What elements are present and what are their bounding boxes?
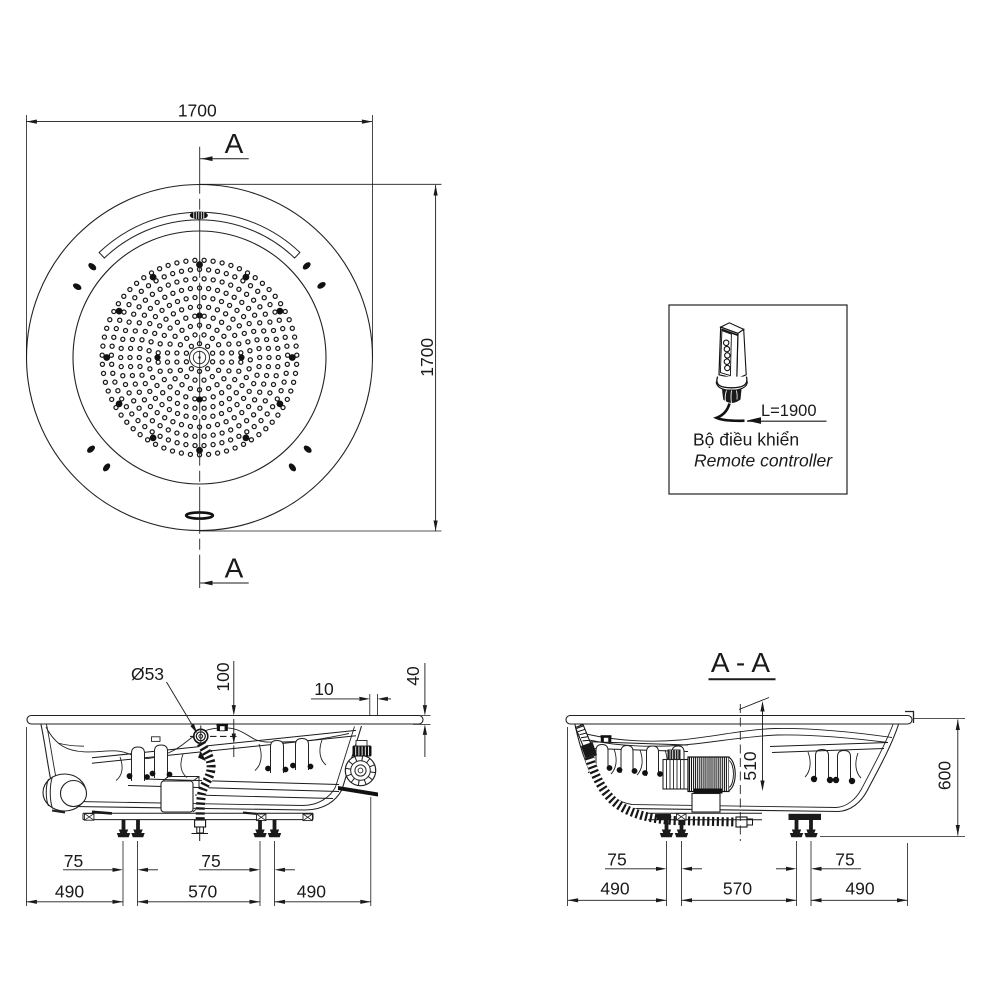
svg-text:Ø53: Ø53: [131, 664, 164, 684]
svg-text:A: A: [225, 552, 244, 583]
svg-text:510: 510: [740, 751, 760, 780]
svg-text:L=1900: L=1900: [761, 402, 817, 420]
svg-text:75: 75: [64, 851, 83, 871]
svg-text:1700: 1700: [178, 101, 217, 121]
svg-text:600: 600: [935, 761, 955, 790]
svg-text:490: 490: [55, 882, 84, 902]
svg-text:10: 10: [314, 679, 334, 699]
svg-text:Bộ điều khiển: Bộ điều khiển: [693, 430, 799, 450]
svg-text:A: A: [225, 128, 244, 159]
svg-text:75: 75: [607, 849, 626, 869]
svg-text:40: 40: [403, 666, 423, 686]
svg-text:1700: 1700: [417, 338, 437, 377]
svg-text:490: 490: [297, 882, 326, 902]
svg-text:570: 570: [723, 879, 752, 899]
svg-text:75: 75: [201, 851, 220, 871]
svg-text:490: 490: [600, 879, 629, 899]
svg-text:75: 75: [835, 849, 854, 869]
svg-text:570: 570: [188, 882, 217, 902]
svg-text:Remote controller: Remote controller: [694, 451, 833, 471]
svg-text:A - A: A - A: [711, 647, 770, 678]
svg-text:100: 100: [213, 662, 233, 691]
svg-text:490: 490: [845, 879, 874, 899]
